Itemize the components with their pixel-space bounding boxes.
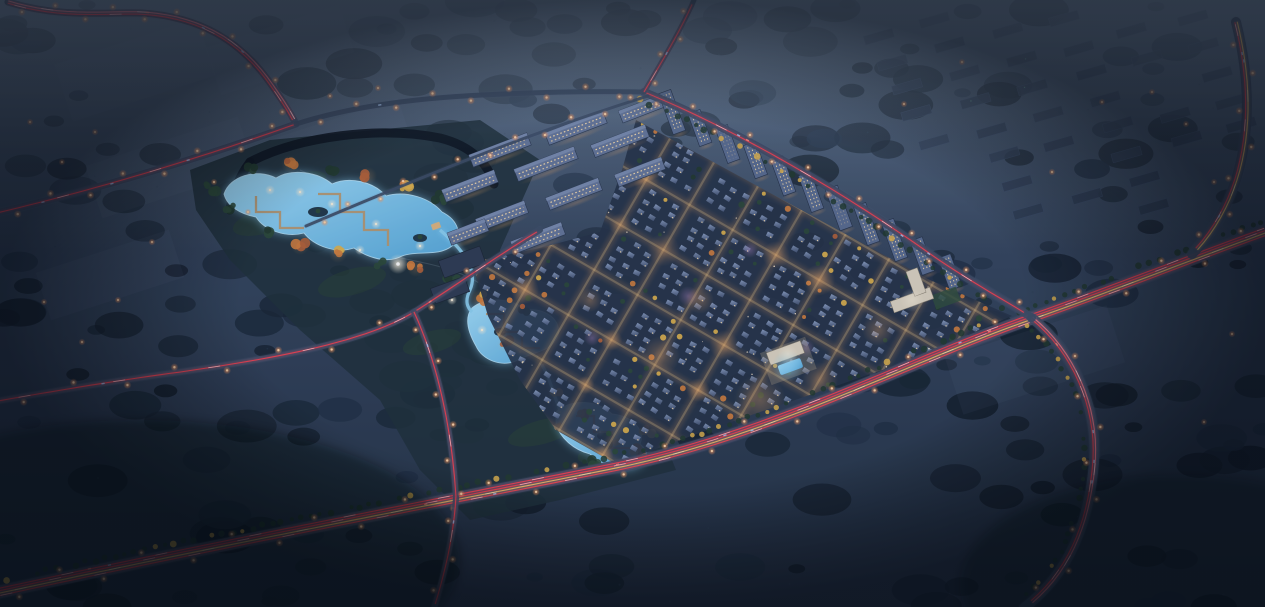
render-canvas xyxy=(0,0,1265,607)
aerial-night-render xyxy=(0,0,1265,607)
atmosphere xyxy=(0,0,1265,607)
